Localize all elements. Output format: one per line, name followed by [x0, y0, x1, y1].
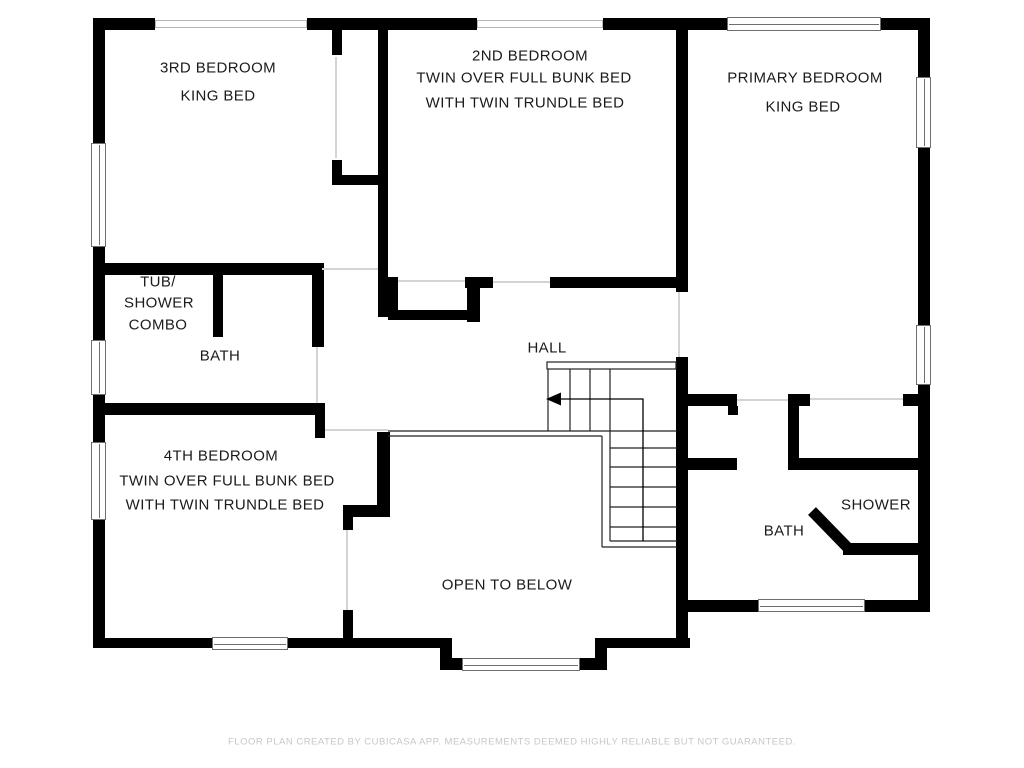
wall-segment — [467, 277, 480, 322]
door-opening-line — [678, 292, 680, 357]
window-symbol — [91, 442, 106, 520]
wall-segment — [343, 505, 353, 530]
wall-segment — [728, 406, 738, 415]
window-symbol — [916, 325, 931, 385]
stair-walk-line — [557, 399, 643, 541]
wall-segment — [343, 610, 353, 648]
room-label-bedroom2-bed2: WITH TWIN TRUNDLE BED — [426, 96, 625, 111]
wall-segment — [312, 263, 324, 347]
wall-segment — [688, 394, 737, 406]
room-label-hall: HALL — [527, 341, 566, 356]
window-symbol — [916, 77, 931, 148]
wall-segment — [918, 385, 930, 612]
stair-direction-arrow-icon — [546, 393, 561, 406]
room-label-bedroom3-name: 3RD BEDROOM — [160, 61, 276, 76]
room-label-bath-lower: BATH — [764, 524, 805, 539]
room-label-tub-line1: TUB/ — [140, 275, 176, 290]
room-label-bedroom3-bed: KING BED — [181, 89, 256, 104]
window-symbol — [212, 637, 288, 650]
wall-segment — [93, 18, 105, 143]
wall-segment — [93, 247, 105, 340]
door-opening-line — [322, 268, 378, 270]
room-label-open-to-below: OPEN TO BELOW — [442, 578, 573, 593]
window-symbol — [758, 599, 865, 612]
disclaimer-text: FLOOR PLAN CREATED BY CUBICASA APP. MEAS… — [228, 737, 796, 748]
wall-segment — [676, 357, 688, 648]
room-label-tub-line3: COMBO — [129, 318, 188, 333]
door-opening-line — [325, 429, 388, 431]
window-symbol — [91, 340, 106, 395]
wall-segment — [918, 18, 930, 77]
wall-segment — [903, 394, 930, 406]
room-label-bath-upper: BATH — [200, 349, 241, 364]
window-symbol — [91, 143, 106, 247]
door-opening-line — [346, 530, 348, 610]
wall-segment — [603, 18, 727, 30]
door-opening-line — [810, 398, 903, 400]
wall-segment — [332, 18, 342, 55]
staircase — [388, 362, 677, 547]
wall-segment — [788, 394, 810, 406]
wall-segment — [788, 458, 920, 470]
staircase-overlay — [0, 0, 1024, 768]
room-label-bedroom4-bed1: TWIN OVER FULL BUNK BED — [119, 474, 334, 489]
window-symbol — [155, 20, 307, 28]
window-symbol — [477, 20, 603, 28]
wall-segment — [677, 458, 737, 470]
room-label-bedroom4-name: 4TH BEDROOM — [164, 449, 278, 464]
wall-segment — [93, 263, 320, 275]
wall-segment — [676, 18, 688, 292]
wall-segment — [378, 18, 388, 317]
door-opening-line — [737, 399, 788, 401]
room-label-shower: SHOWER — [841, 498, 911, 513]
door-opening-line — [335, 57, 337, 158]
wall-segment — [315, 403, 325, 438]
room-label-tub-line2: SHOWER — [124, 296, 194, 311]
door-opening-line — [398, 280, 465, 282]
wall-segment — [788, 406, 799, 458]
room-label-bedroom4-bed2: WITH TWIN TRUNDLE BED — [126, 498, 325, 513]
wall-segment — [440, 658, 462, 670]
floor-plan: 3RD BEDROOM KING BED 2ND BEDROOM TWIN OV… — [0, 0, 1024, 768]
wall-segment — [550, 277, 682, 288]
wall-segment — [93, 520, 105, 648]
wall-segment — [93, 403, 325, 415]
wall-segment — [93, 638, 212, 648]
wall-segment — [377, 432, 390, 517]
stair-landing-edge — [547, 362, 676, 369]
shower-wall-diagonal — [812, 511, 847, 547]
wall-segment — [677, 600, 758, 612]
wall-segment — [288, 638, 452, 648]
wall-segment — [213, 268, 223, 337]
shower-wall — [843, 543, 918, 555]
wall-segment — [332, 175, 388, 185]
room-label-bedroom2-bed1: TWIN OVER FULL BUNK BED — [416, 71, 631, 86]
window-symbol — [462, 658, 580, 671]
room-label-bedroom2-name: 2ND BEDROOM — [472, 49, 588, 64]
wall-segment — [865, 600, 930, 612]
door-opening-line — [493, 281, 550, 283]
window-symbol — [727, 17, 881, 31]
wall-segment — [918, 148, 930, 325]
room-label-primary-name: PRIMARY BEDROOM — [727, 71, 882, 86]
door-opening-line — [316, 347, 318, 403]
room-label-primary-bed: KING BED — [766, 100, 841, 115]
